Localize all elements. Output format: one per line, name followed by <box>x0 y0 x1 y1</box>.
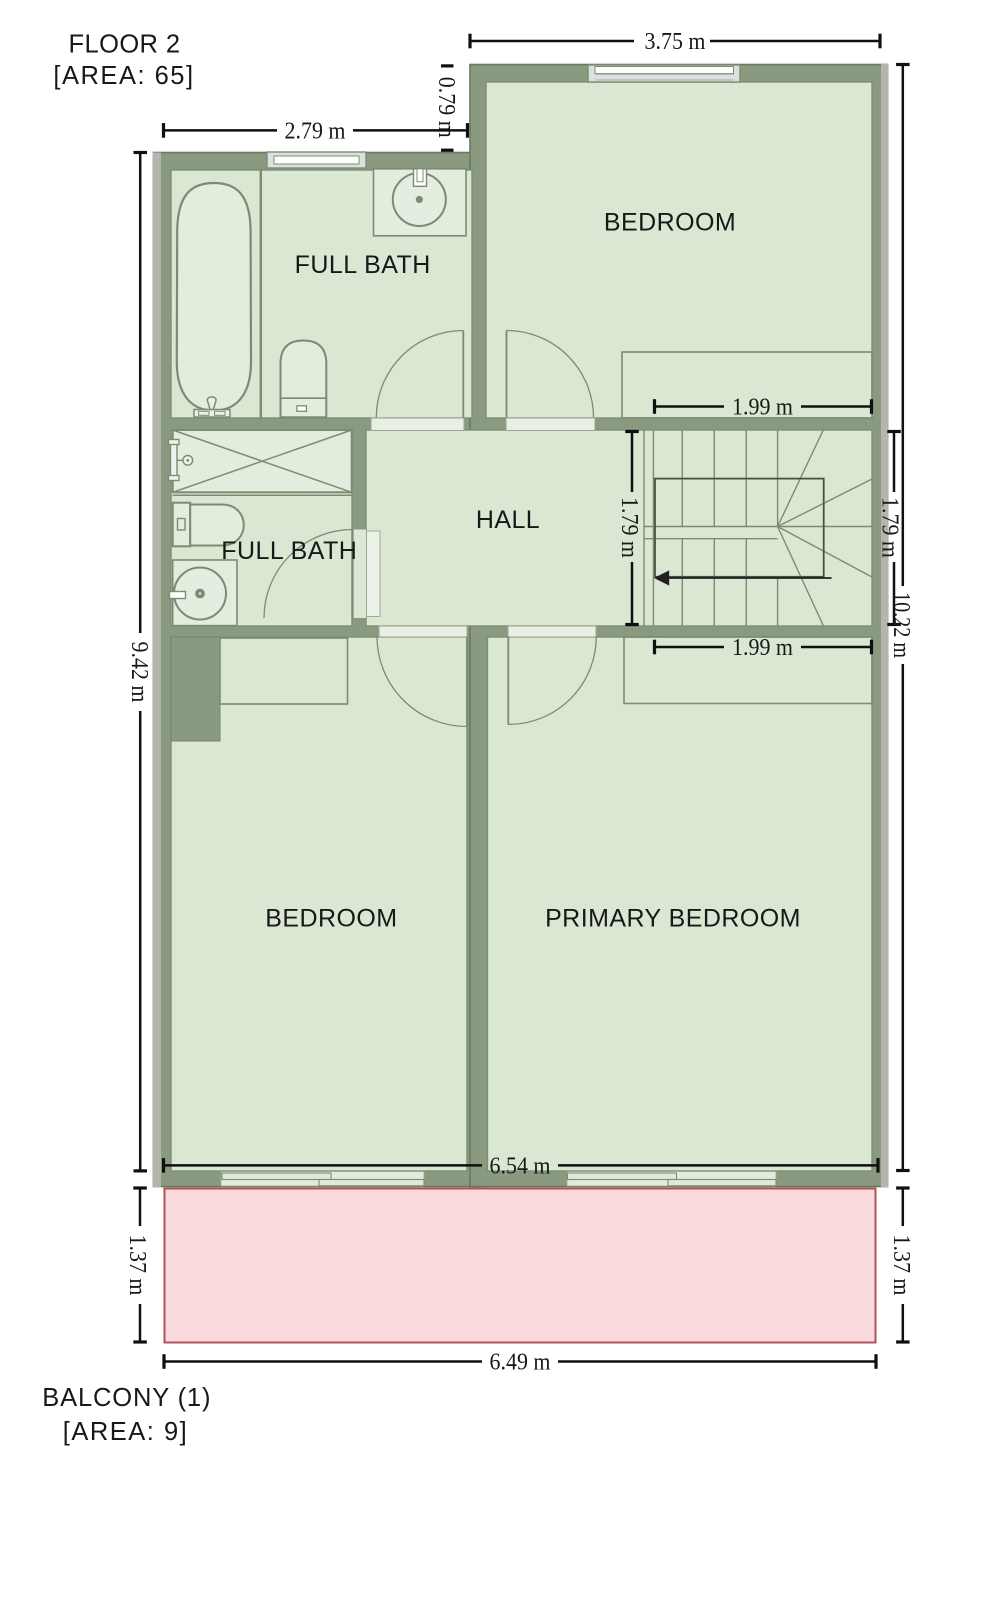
svg-text:BEDROOM: BEDROOM <box>604 209 736 237</box>
svg-text:10.22 m: 10.22 m <box>888 592 915 658</box>
svg-text:2.79 m: 2.79 m <box>285 117 346 144</box>
svg-text:1.79 m: 1.79 m <box>877 497 904 558</box>
svg-text:1.99 m: 1.99 m <box>732 394 793 421</box>
svg-text:HALL: HALL <box>476 506 540 534</box>
svg-text:0.79 m: 0.79 m <box>433 77 460 138</box>
svg-text:1.37 m: 1.37 m <box>124 1235 151 1296</box>
svg-text:1.37 m: 1.37 m <box>888 1235 915 1296</box>
svg-text:1.79 m: 1.79 m <box>616 497 643 558</box>
svg-text:FLOOR 2: FLOOR 2 <box>69 31 181 59</box>
svg-text:3.75 m: 3.75 m <box>645 28 706 55</box>
svg-text:[AREA: 65]: [AREA: 65] <box>53 62 194 90</box>
svg-text:1.99 m: 1.99 m <box>732 634 793 661</box>
svg-text:BEDROOM: BEDROOM <box>265 905 397 933</box>
svg-text:9.42 m: 9.42 m <box>126 642 153 703</box>
svg-text:[AREA: 9]: [AREA: 9] <box>63 1418 188 1446</box>
svg-text:6.49 m: 6.49 m <box>490 1349 551 1376</box>
svg-text:FULL BATH: FULL BATH <box>295 251 431 279</box>
svg-text:BALCONY (1): BALCONY (1) <box>42 1384 211 1412</box>
svg-text:PRIMARY BEDROOM: PRIMARY BEDROOM <box>545 905 801 933</box>
svg-text:FULL BATH: FULL BATH <box>221 537 357 565</box>
svg-text:6.54 m: 6.54 m <box>490 1152 551 1179</box>
